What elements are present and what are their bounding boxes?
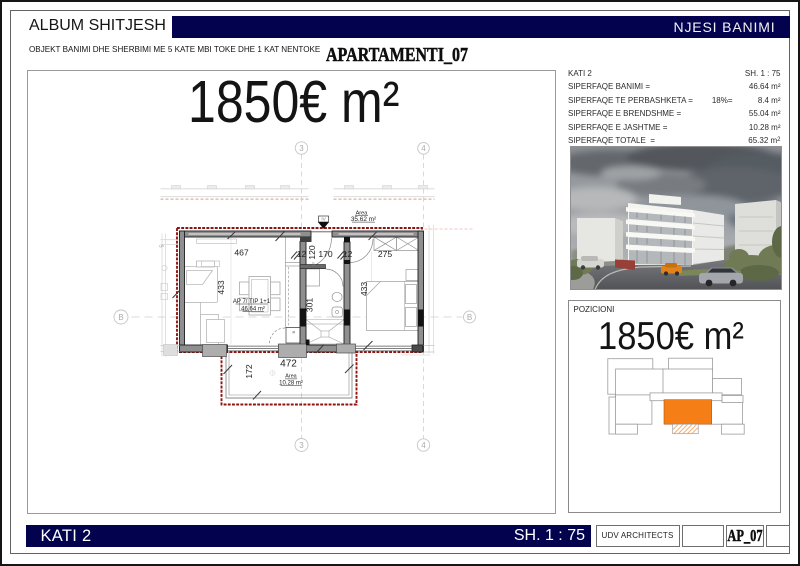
svg-text:120: 120 bbox=[307, 245, 317, 260]
svg-text:301: 301 bbox=[304, 297, 314, 312]
svg-text:4: 4 bbox=[421, 144, 426, 153]
svg-text:472: 472 bbox=[280, 358, 297, 369]
svg-text:B: B bbox=[466, 312, 471, 321]
svg-text:LV: LV bbox=[311, 261, 315, 266]
svg-text:5: 5 bbox=[159, 244, 165, 247]
svg-text:172: 172 bbox=[244, 364, 254, 379]
svg-text:3: 3 bbox=[299, 440, 304, 449]
svg-text:467: 467 bbox=[234, 247, 249, 257]
svg-text:275: 275 bbox=[377, 249, 392, 259]
svg-text:B: B bbox=[118, 312, 123, 321]
svg-text:4: 4 bbox=[421, 440, 426, 449]
svg-text:12: 12 bbox=[342, 249, 352, 259]
svg-text:433: 433 bbox=[359, 281, 369, 296]
svg-text:170: 170 bbox=[318, 249, 333, 259]
svg-text:3: 3 bbox=[299, 143, 304, 152]
svg-text:B: B bbox=[291, 330, 296, 333]
svg-text:12: 12 bbox=[296, 249, 306, 259]
svg-text:433: 433 bbox=[216, 280, 226, 295]
